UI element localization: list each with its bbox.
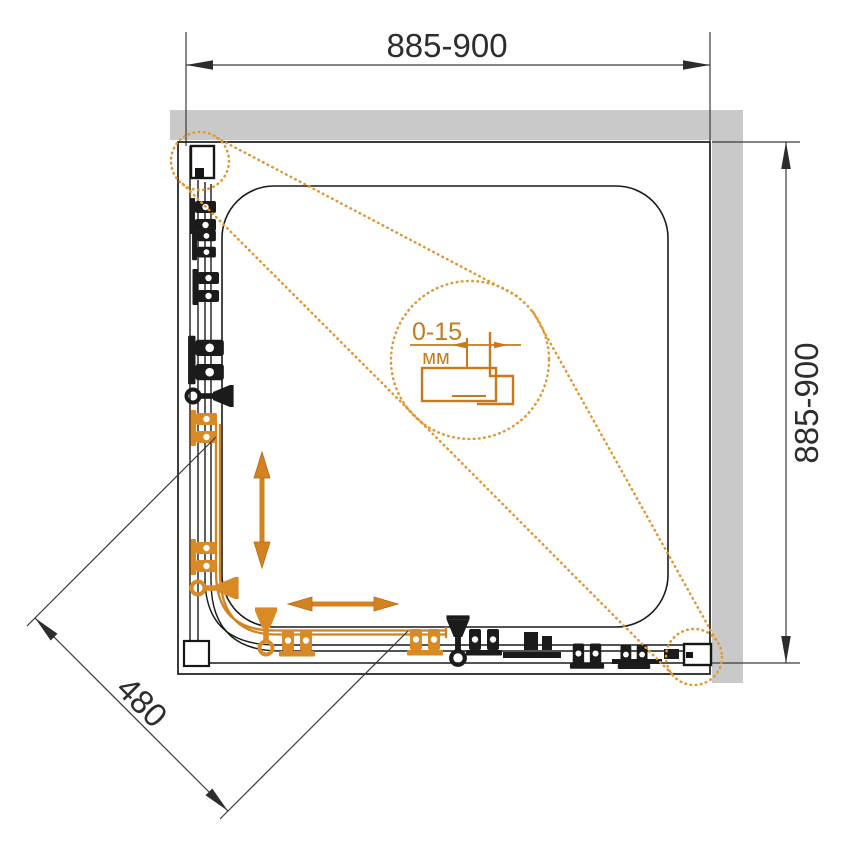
door-roller-icon [407, 629, 443, 656]
dim-arrow-left-icon [186, 60, 213, 70]
horizontal-slide-arrow-icon [288, 597, 398, 611]
dim-height-label: 885-900 [788, 342, 825, 463]
corner-profile-top-left [191, 146, 214, 178]
vertical-slide-arrow-icon [254, 452, 270, 568]
fixed-panel-hardware [187, 146, 712, 669]
dim-width-label: 885-900 [386, 27, 507, 64]
detail-unit-label: мм [422, 347, 450, 369]
enclosure-frame [178, 142, 710, 674]
adjustment-detail: 0-15 мм [410, 318, 521, 404]
sliding-door [191, 410, 447, 657]
shower-enclosure-diagram: 885-900 885-900 [0, 0, 856, 853]
roller-icon [570, 644, 604, 669]
door-handle-icon [446, 615, 469, 664]
door-glass-line [216, 424, 446, 631]
shower-tray [222, 186, 668, 627]
dim-arrow-down-icon [781, 636, 791, 663]
outer-frame [178, 142, 710, 674]
roller-icon [193, 269, 220, 305]
corner-foot-block [184, 641, 209, 666]
roller-icon [188, 336, 224, 385]
door-roller-icon [191, 539, 218, 575]
right-wall [712, 110, 743, 683]
door-handle-icon [187, 385, 234, 407]
detail-leader-lines [171, 132, 722, 685]
roller-icon [466, 629, 502, 656]
slide-direction-arrows [254, 452, 398, 611]
detail-range-label: 0-15 [412, 318, 462, 346]
roller-icon [192, 228, 216, 260]
dim-diagonal-label: 480 [110, 669, 175, 734]
detail-arrow-right-icon [494, 342, 508, 348]
technical-drawing-canvas: 885-900 885-900 [0, 0, 856, 853]
dim-arrow-up-icon [781, 142, 791, 169]
top-wall [170, 110, 743, 140]
diagonal-dimension: 480 [27, 437, 408, 819]
height-dimension: 885-900 [686, 142, 825, 663]
corner-profile-bottom-right [684, 644, 711, 665]
dim-arrow-right-icon [683, 60, 710, 70]
